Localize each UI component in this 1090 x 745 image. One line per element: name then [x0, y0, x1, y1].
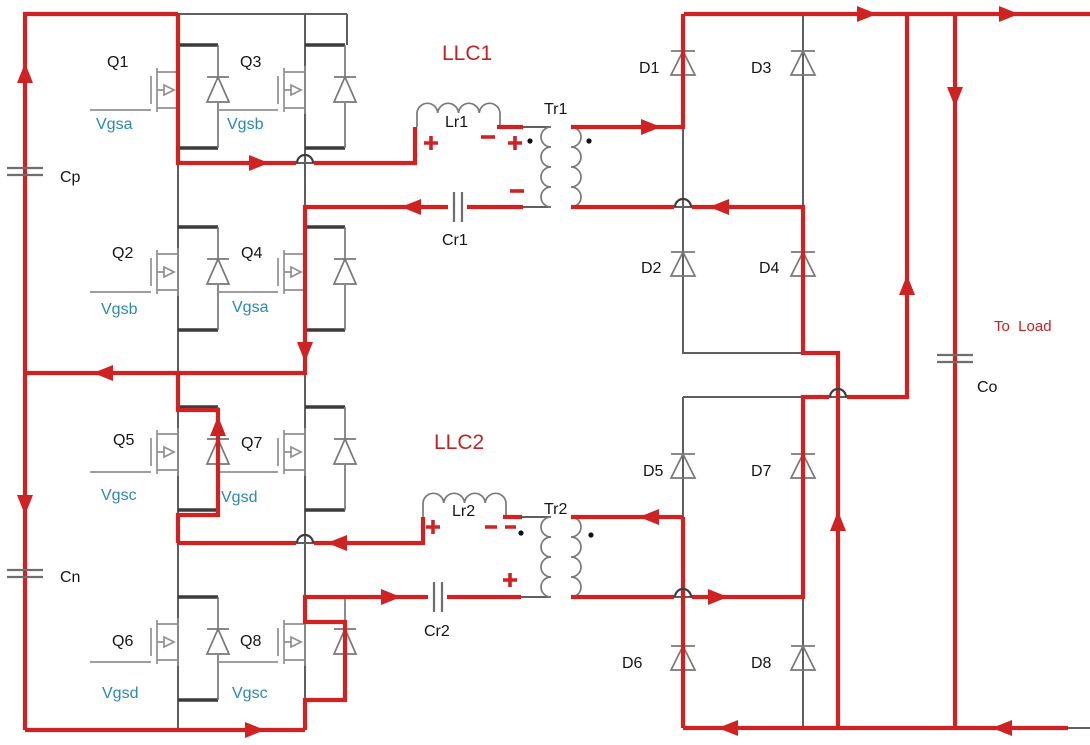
label-q5: Q5: [113, 432, 134, 449]
label-vgs-q4: Vgsa: [232, 299, 269, 316]
label-d2: D2: [641, 260, 662, 277]
label-cn: Cn: [60, 569, 80, 586]
label-d5: D5: [643, 463, 664, 480]
label-q4: Q4: [241, 245, 262, 262]
winding-dot: [527, 138, 532, 143]
label-d6: D6: [622, 655, 643, 672]
label-vgs-q7: Vgsd: [221, 489, 257, 506]
label-q7: Q7: [241, 435, 262, 452]
label-d4: D4: [759, 260, 780, 277]
label-q2: Q2: [112, 245, 133, 262]
label-q8: Q8: [240, 633, 261, 650]
label-q1: Q1: [107, 54, 128, 71]
label-to-load: To Load: [994, 318, 1052, 335]
winding-dot: [586, 138, 591, 143]
label-d3: D3: [751, 60, 772, 77]
winding-dot: [518, 530, 523, 535]
circuit-diagram: Q1 Q3 Q2 Q4 Q5 Q7 Q6 Q8 Vgsa Vgsb Vgsb V…: [0, 0, 1090, 745]
label-cr1: Cr1: [442, 232, 468, 249]
dual-llc-converter-schematic: Q1 Q3 Q2 Q4 Q5 Q7 Q6 Q8 Vgsa Vgsb Vgsb V…: [0, 0, 1090, 745]
winding-dot: [588, 532, 593, 537]
label-lr2: Lr2: [452, 503, 475, 520]
label-q6: Q6: [112, 633, 133, 650]
label-cr2: Cr2: [424, 623, 450, 640]
label-d8: D8: [751, 655, 772, 672]
label-vgs-q5: Vgsc: [101, 487, 137, 504]
label-cp: Cp: [60, 169, 81, 186]
label-llc1: LLC1: [442, 42, 492, 65]
label-vgs-q3: Vgsb: [227, 116, 264, 133]
label-q3: Q3: [240, 54, 261, 71]
label-vgs-q2: Vgsb: [101, 301, 138, 318]
label-d7: D7: [751, 463, 772, 480]
label-vgs-q1: Vgsa: [96, 116, 133, 133]
label-vgs-q6: Vgsd: [102, 685, 138, 702]
label-vgs-q8: Vgsc: [232, 685, 268, 702]
label-d1: D1: [639, 60, 660, 77]
label-tr2: Tr2: [544, 501, 568, 518]
label-llc2: LLC2: [434, 431, 484, 454]
label-tr1: Tr1: [544, 101, 568, 118]
label-lr1: Lr1: [445, 114, 468, 131]
label-co: Co: [977, 379, 998, 396]
